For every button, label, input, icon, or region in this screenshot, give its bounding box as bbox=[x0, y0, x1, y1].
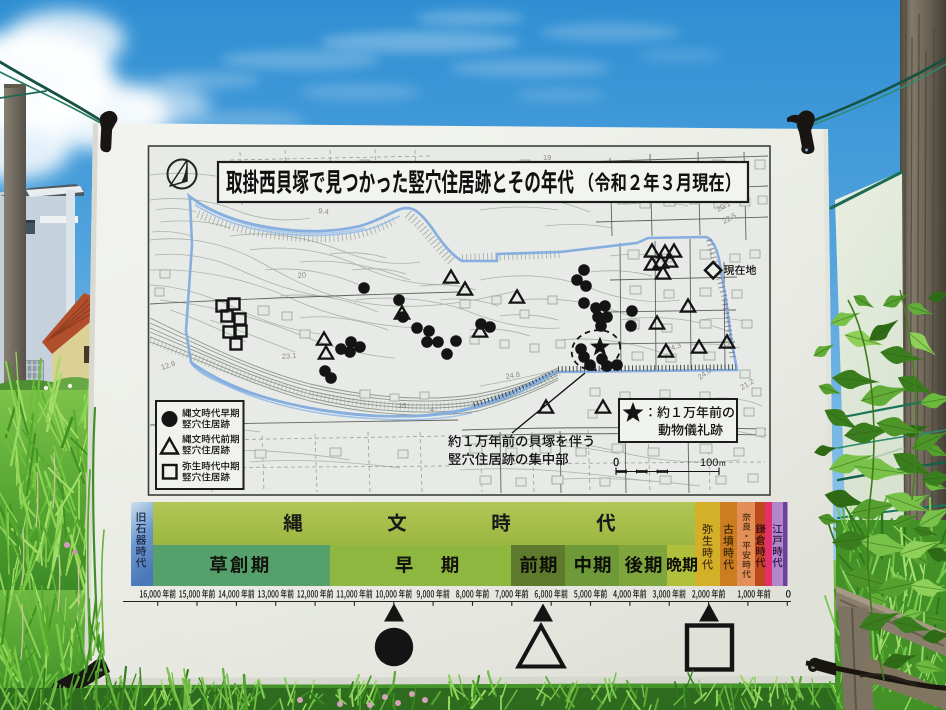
svg-text:100: 100 bbox=[700, 457, 718, 469]
svg-text:9.4: 9.4 bbox=[318, 206, 330, 216]
svg-text:m: m bbox=[719, 459, 726, 468]
svg-text:10: 10 bbox=[398, 401, 406, 410]
svg-text:20: 20 bbox=[297, 270, 306, 280]
svg-text:19: 19 bbox=[543, 153, 551, 162]
svg-text:23.1: 23.1 bbox=[282, 351, 297, 361]
svg-text:4: 4 bbox=[430, 405, 434, 414]
